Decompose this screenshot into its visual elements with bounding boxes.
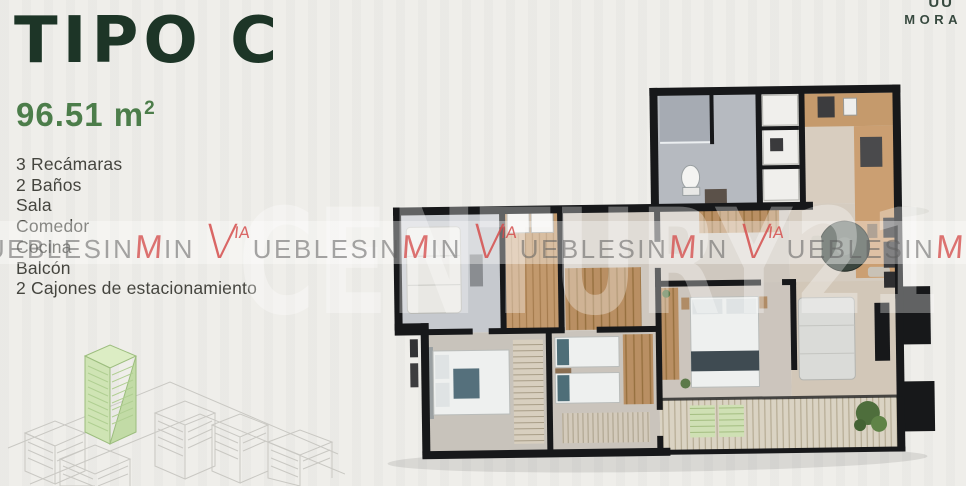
giant-watermark: CENTURY21 <box>238 178 943 348</box>
nightstand <box>681 297 689 309</box>
watermark-text: UEBLESIN <box>787 234 936 264</box>
entry-closet <box>699 208 779 233</box>
room-floors <box>396 90 900 456</box>
hall-floor <box>559 204 791 331</box>
outline-building <box>25 421 85 484</box>
wall-art <box>884 272 896 288</box>
wall-art <box>867 224 877 238</box>
headboard <box>425 347 434 419</box>
shower <box>659 95 712 143</box>
washer <box>507 211 529 233</box>
brand-name: MORA <box>904 12 962 27</box>
nightstand <box>759 296 767 308</box>
stove <box>817 96 834 117</box>
via-logo-m: M <box>668 230 698 263</box>
bed-double <box>433 350 510 415</box>
toilet <box>681 165 699 189</box>
watermark-unit: VIAUEBLESINMIN <box>472 221 729 264</box>
bed-throw <box>691 350 759 371</box>
green-mat <box>690 405 715 437</box>
sofa <box>406 227 461 314</box>
brand-logo: UU MORA <box>904 0 962 27</box>
kitchen-counter-top <box>800 93 893 127</box>
bed-master <box>690 296 759 387</box>
bedroom3-floor <box>549 330 661 454</box>
watermark-text: IN <box>431 234 462 264</box>
dining-floor <box>789 203 898 299</box>
bed-throw <box>453 368 479 398</box>
area-number: 96.51 m <box>16 96 144 133</box>
watermark-text: UEBLESIN <box>253 234 402 264</box>
feature-item: Balcón <box>16 258 257 279</box>
outline-building <box>268 430 332 486</box>
wall-art <box>883 242 895 268</box>
watermark-text: IN <box>698 234 729 264</box>
feature-item: 2 Cajones de estacionamiento <box>16 278 257 299</box>
wall-art <box>883 218 895 238</box>
sofa-sectional <box>798 297 855 380</box>
wardrobe <box>623 334 654 404</box>
buildings-illustration <box>0 326 345 486</box>
bedroom2-floor <box>421 331 549 455</box>
bed-single <box>555 372 619 403</box>
watermark-unit: VIAUEBLESINMIN <box>739 221 966 264</box>
laundry-floor <box>503 207 561 332</box>
master-closet <box>660 288 679 380</box>
sink <box>843 98 856 115</box>
furniture <box>404 93 898 446</box>
walls <box>391 84 935 459</box>
fridge <box>860 137 882 167</box>
plant-large <box>856 401 880 425</box>
rug <box>562 412 650 443</box>
dining-table <box>819 221 870 272</box>
master-bedroom-floor <box>658 282 792 402</box>
via-logo-ia: IA <box>500 223 518 242</box>
tv <box>874 303 890 361</box>
closet-cubbies <box>759 91 802 205</box>
kitchen-floor <box>800 90 897 204</box>
dryer <box>531 210 553 232</box>
wall-art <box>410 339 418 357</box>
brand-partial-glyphs: UU <box>904 0 954 9</box>
area-superscript: 2 <box>144 98 156 119</box>
chair <box>811 236 821 258</box>
via-logo-v: VIA <box>469 221 522 264</box>
plant <box>662 290 670 298</box>
via-logo-ia: IA <box>767 223 785 242</box>
nightstand <box>555 368 571 373</box>
via-logo-m: M <box>401 230 431 263</box>
coffee-table <box>470 254 483 286</box>
hall-closet <box>565 267 642 330</box>
outline-building <box>60 445 130 486</box>
page-title: TIPO C <box>14 4 282 78</box>
feature-item: 2 Baños <box>16 175 257 196</box>
plant <box>680 378 690 388</box>
via-logo-m: M <box>935 230 965 263</box>
bath-cabinet <box>705 189 727 204</box>
bed-single <box>555 336 619 367</box>
outline-building <box>212 414 268 483</box>
tv-room-floor <box>790 281 900 400</box>
listing-card: TIPO C 96.51 m2 3 Recámaras2 BañosSalaCo… <box>0 0 966 486</box>
feature-item: Comedor <box>16 216 257 237</box>
kitchen-counter-right <box>854 126 896 279</box>
feature-item: 3 Recámaras <box>16 154 257 175</box>
bathroom-floor <box>656 91 762 205</box>
outline-building <box>155 401 215 479</box>
watermark-text: UEBLESIN <box>520 234 669 264</box>
feature-item: Cocina <box>16 237 257 258</box>
via-logo-v: VIA <box>736 221 789 264</box>
balcony-deck <box>660 397 901 452</box>
sala-floor <box>398 208 504 333</box>
chair <box>868 267 890 277</box>
area-value: 96.51 m2 <box>16 96 156 134</box>
feature-item: Sala <box>16 195 257 216</box>
wall-art <box>410 363 418 387</box>
green-mat <box>719 405 744 437</box>
rug <box>513 340 544 444</box>
highlight-building <box>85 345 136 444</box>
features-list: 3 Recámaras2 BañosSalaComedorCocinaBalcó… <box>16 154 257 299</box>
